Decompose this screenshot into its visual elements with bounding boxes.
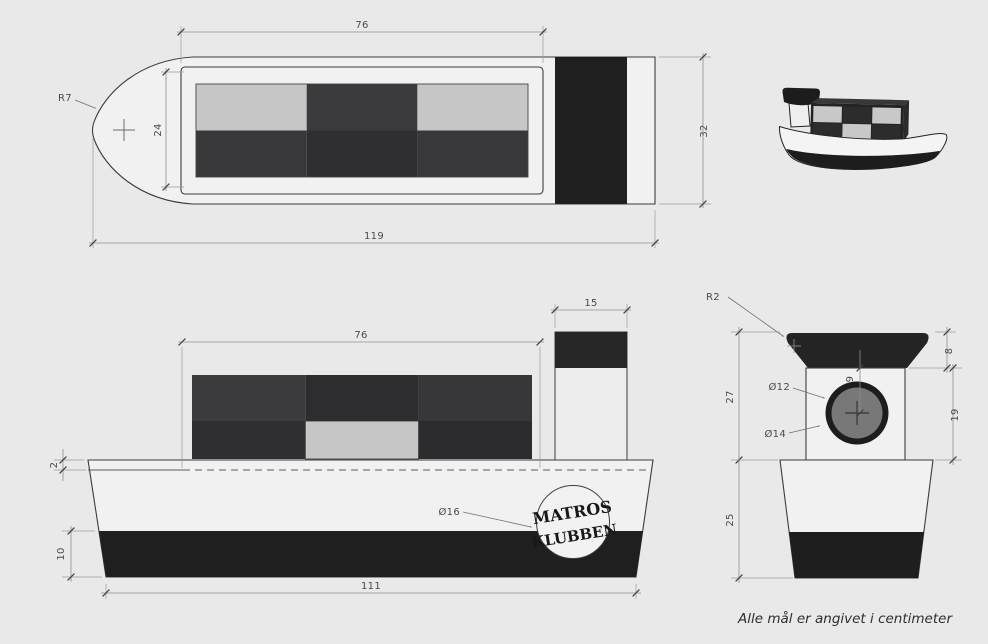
dim-structure-height: 27: [725, 327, 780, 465]
svg-text:8: 8: [944, 348, 955, 355]
svg-text:25: 25: [725, 513, 736, 526]
svg-text:2: 2: [49, 462, 60, 469]
dim-deck-thickness: 2: [49, 449, 86, 481]
svg-text:10: 10: [56, 547, 67, 560]
svg-text:9: 9: [845, 376, 856, 383]
top-stern-block: [555, 57, 627, 204]
front-view: R2 8 9 Ø12 Ø14: [706, 292, 962, 583]
porthole: [826, 382, 889, 445]
svg-text:15: 15: [584, 298, 597, 309]
drawing-canvas: 76 24 R7 119 32: [0, 0, 988, 644]
svg-text:32: 32: [699, 124, 710, 137]
iso-funnel-body: [789, 103, 810, 127]
svg-text:19: 19: [950, 408, 961, 421]
svg-text:R7: R7: [58, 93, 72, 104]
front-funnel-cap: [786, 333, 928, 368]
top-cabin-checkerboard: [196, 84, 528, 177]
dim-cap-corner-radius: R2: [706, 292, 783, 336]
svg-text:119: 119: [364, 231, 384, 242]
side-cabin-checkerboard: [192, 375, 532, 459]
svg-text:111: 111: [361, 581, 381, 592]
side-view: 76 15 2 10: [49, 298, 653, 599]
svg-text:76: 76: [355, 20, 368, 31]
svg-text:Ø12: Ø12: [769, 381, 791, 393]
svg-text:Ø16: Ø16: [439, 506, 461, 518]
side-funnel-cap: [555, 332, 627, 368]
front-hull-bottom-band: [789, 532, 924, 578]
dim-funnel-width: 15: [551, 298, 631, 328]
svg-text:24: 24: [153, 123, 164, 136]
dim-body-height: 19: [935, 364, 962, 465]
iso-view: [779, 88, 946, 170]
svg-text:R2: R2: [706, 292, 720, 303]
svg-text:76: 76: [354, 330, 367, 341]
dim-bottom-band-height: 10: [56, 526, 102, 582]
technical-drawing-page: 76 24 R7 119 32: [0, 0, 988, 644]
svg-text:27: 27: [725, 390, 736, 403]
dim-top-overall-width: 32: [659, 53, 711, 208]
units-note: Alle mål er angivet i centimeter: [737, 610, 953, 627]
dim-keel-length: 111: [101, 581, 641, 599]
svg-text:Ø14: Ø14: [765, 428, 787, 440]
dim-bow-radius: R7: [58, 93, 95, 108]
top-view: 76 24 R7 119 32: [58, 20, 711, 248]
